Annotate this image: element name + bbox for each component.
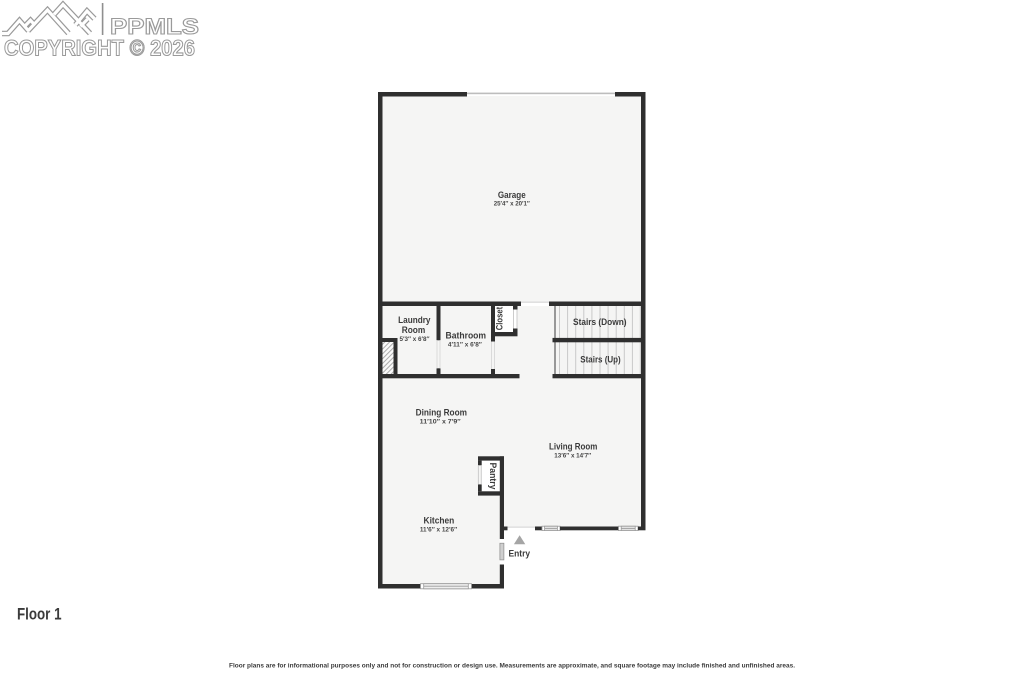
svg-text:11′10″ x 7′9″: 11′10″ x 7′9″ [420,418,462,425]
svg-text:Entry: Entry [509,548,531,558]
svg-text:4′11″ x 6′8″: 4′11″ x 6′8″ [448,341,483,348]
svg-text:Stairs (Down): Stairs (Down) [573,317,627,327]
svg-text:Floor plans are for informatio: Floor plans are for informational purpos… [229,663,795,670]
svg-text:11′6″ x 12′6″: 11′6″ x 12′6″ [420,527,458,534]
svg-text:Dining Room: Dining Room [416,408,467,418]
svg-text:5′3″ x 6′8″: 5′3″ x 6′8″ [399,336,430,343]
svg-text:Bathroom: Bathroom [446,331,487,341]
svg-text:Living Room: Living Room [549,442,597,452]
svg-text:Floor 1: Floor 1 [17,606,62,624]
svg-text:Kitchen: Kitchen [424,516,455,526]
svg-text:13′6″ x 14′7″: 13′6″ x 14′7″ [554,453,592,460]
svg-text:Room: Room [402,325,426,335]
svg-text:Stairs (Up): Stairs (Up) [580,354,620,364]
svg-text:Closet: Closet [495,307,505,331]
svg-text:25′4″ x 20′1″: 25′4″ x 20′1″ [494,201,531,208]
svg-text:Pantry: Pantry [488,463,498,491]
svg-text:Garage: Garage [498,190,526,200]
svg-text:Laundry: Laundry [398,315,431,325]
svg-text:COPYRIGHT © 2026: COPYRIGHT © 2026 [4,36,195,61]
